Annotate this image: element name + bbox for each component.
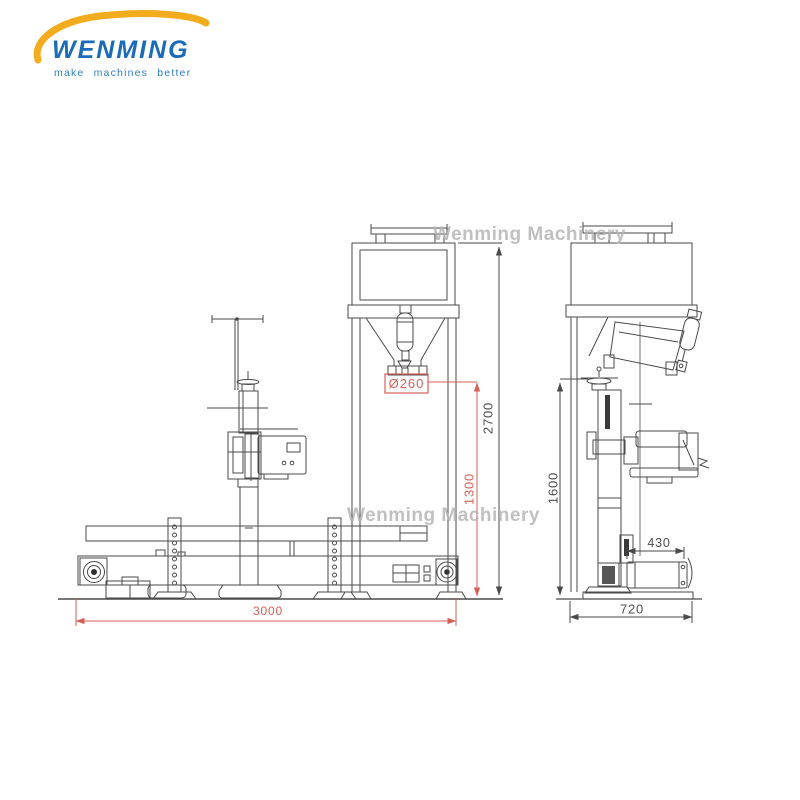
conveyor-assembly — [58, 518, 503, 599]
front-view-machine — [341, 224, 477, 599]
dim-label-base-depth: 720 — [617, 602, 647, 617]
technical-drawing — [0, 0, 800, 800]
dimension-line-side-frame-height — [560, 379, 588, 595]
watermark-top: Wenming Machinery — [433, 224, 626, 246]
dim-label-side-frame-height: 1600 — [546, 472, 561, 504]
dim-label-conveyor-length: 3000 — [253, 604, 283, 618]
dim-label-roller-length: 430 — [647, 536, 670, 550]
dim-label-discharge-height: 1300 — [462, 473, 477, 505]
dim-label-spout-diameter: Ø260 — [385, 374, 428, 393]
dim-label-overall-height: 2700 — [481, 402, 496, 434]
watermark-bottom: Wenming Machinery — [347, 505, 540, 527]
product-dimension-diagram: WENMING make machines better — [0, 0, 800, 800]
side-view-machine — [556, 222, 709, 599]
